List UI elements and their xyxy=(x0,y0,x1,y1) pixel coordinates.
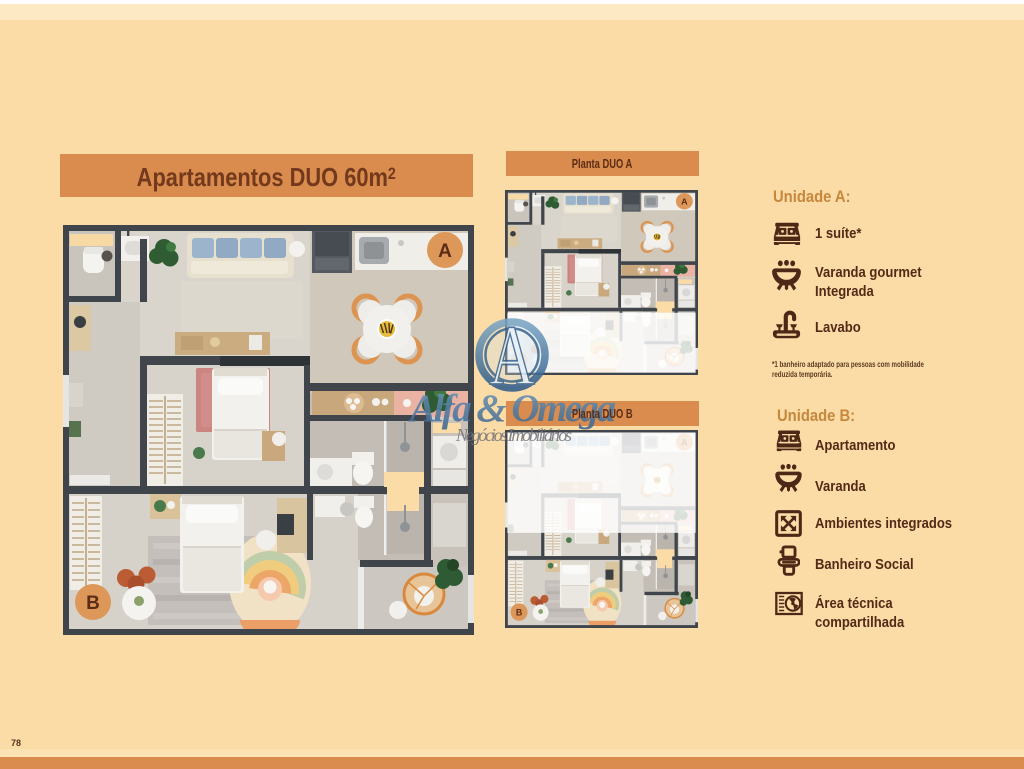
svg-text:Negócios Imobiliários: Negócios Imobiliários xyxy=(455,425,572,445)
